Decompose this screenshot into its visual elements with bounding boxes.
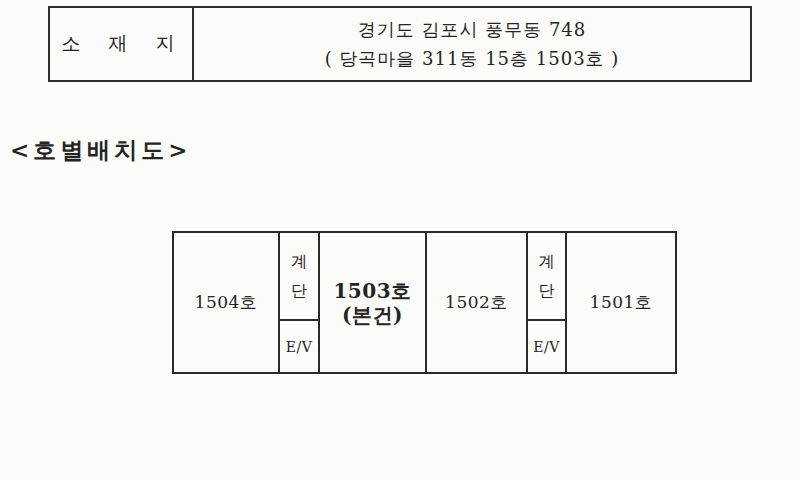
stairs-char-top: 계 (291, 254, 307, 270)
unit-cell-1501: 1501호 (567, 233, 675, 372)
subject-unit-label: 1503호 (333, 279, 411, 303)
core-cell-right: 계 단 E/V (528, 233, 567, 372)
unit-label: 1502호 (445, 291, 508, 314)
unit-label: 1501호 (590, 291, 653, 314)
document-page: 소 재 지 경기도 김포시 풍무동 748 ( 당곡마을 311동 15층 15… (0, 0, 800, 480)
elevator-label: E/V (286, 339, 313, 355)
unit-cell-1502: 1502호 (427, 233, 528, 372)
stairs-char-top: 계 (539, 254, 555, 270)
unit-cell-1504: 1504호 (174, 233, 280, 372)
stairs-char-bottom: 단 (539, 283, 555, 299)
elevator-section: E/V (528, 321, 565, 372)
unit-label: 1504호 (195, 291, 258, 314)
location-address-cell: 경기도 김포시 풍무동 748 ( 당곡마을 311동 15층 1503호 ) (194, 8, 750, 80)
section-title: <호별배치도> (10, 135, 192, 166)
location-table: 소 재 지 경기도 김포시 풍무동 748 ( 당곡마을 311동 15층 15… (48, 6, 752, 82)
address-line-2: ( 당곡마을 311동 15층 1503호 ) (325, 44, 620, 73)
elevator-label: E/V (533, 339, 560, 355)
core-cell-left: 계 단 E/V (280, 233, 320, 372)
floor-plan-diagram: 1504호 계 단 E/V 1503호 (본건) 1502호 계 단 E/V (172, 231, 677, 374)
subject-unit-note: (본건) (342, 303, 403, 327)
stairs-char-bottom: 단 (291, 283, 307, 299)
stairs-section: 계 단 (280, 233, 318, 321)
address-line-1: 경기도 김포시 풍무동 748 (358, 15, 587, 44)
subject-unit-cell-1503: 1503호 (본건) (320, 233, 427, 372)
elevator-section: E/V (280, 321, 318, 372)
stairs-section: 계 단 (528, 233, 565, 321)
location-label: 소 재 지 (50, 8, 194, 80)
